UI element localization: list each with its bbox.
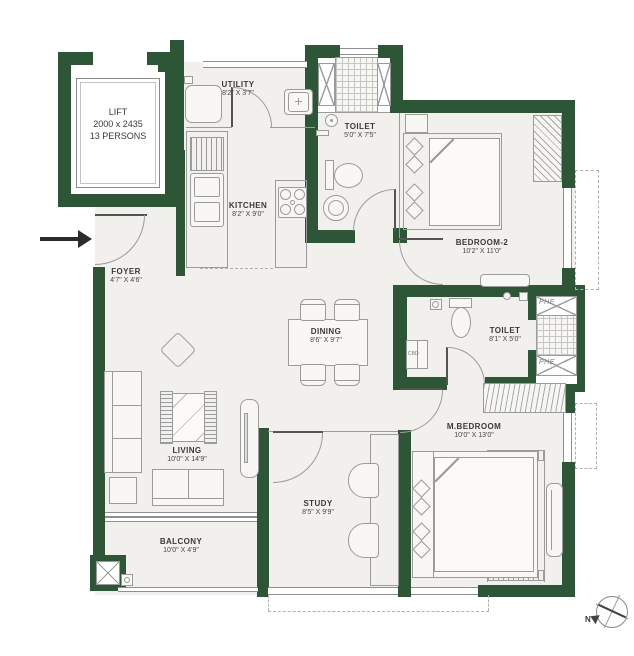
window [203, 61, 307, 68]
room-dims: 5'0" X 7'5" [344, 132, 376, 139]
wardrobe [483, 383, 566, 413]
room-name: TOILET [489, 326, 521, 335]
room-name: TOILET [344, 122, 376, 131]
dresser [546, 483, 563, 557]
projection-dashed [268, 611, 489, 612]
wall [528, 288, 536, 320]
window [268, 587, 398, 595]
blanket-fold [430, 139, 454, 163]
dining-chair [300, 299, 326, 321]
wall [478, 585, 575, 597]
door-arc [95, 215, 145, 265]
chair-back-line [301, 380, 325, 381]
loveseat-divider [188, 470, 189, 498]
burner [294, 189, 305, 200]
study-chair [348, 523, 379, 558]
sofa-cushion-line [113, 405, 141, 406]
tv-unit-glass [172, 393, 205, 442]
duct-box [318, 63, 335, 106]
room-name: KITCHEN [229, 201, 267, 210]
room-dims: 4'7" X 4'6" [110, 277, 142, 284]
window [340, 48, 378, 55]
room-label-foyer: FOYER 4'7" X 4'6" [110, 267, 142, 284]
shower-head-dot [330, 119, 333, 122]
wall [398, 430, 411, 597]
window [563, 188, 572, 268]
study-desk [370, 434, 399, 586]
wc-bowl [451, 307, 471, 338]
tap-icon [316, 130, 329, 136]
floor-drain-hole [124, 577, 130, 583]
nightstand [405, 114, 428, 133]
wc-bowl [334, 163, 363, 188]
lift-capacity: 13 PERSONS [90, 130, 147, 142]
kitchen-sink-bowl [194, 177, 220, 197]
wall [305, 230, 355, 243]
room-name: UTILITY [221, 80, 254, 89]
dresser-line [551, 490, 552, 550]
room-dims: 8'5" X 9'9" [302, 509, 334, 516]
projection-dashed [575, 170, 599, 290]
dining-chair [334, 299, 360, 321]
tv-screen [244, 413, 248, 463]
room-name: BEDROOM-2 [456, 238, 509, 247]
dining-chair [334, 364, 360, 386]
wall [577, 288, 585, 392]
burner-knob [290, 200, 295, 205]
wall [562, 100, 575, 188]
balcony-railing [118, 587, 258, 592]
room-dims: 10'0" X 4'9" [160, 547, 202, 554]
burner [280, 189, 291, 200]
loveseat-back [153, 498, 223, 499]
phe-label: PHE [539, 359, 555, 366]
kitchen-sink-bowl [194, 202, 220, 222]
room-name: FOYER [110, 267, 142, 276]
wall [170, 40, 184, 154]
sofa-back [112, 372, 113, 472]
room-dims: 10'0" X 13'0" [447, 432, 501, 439]
balcony-duct [96, 561, 120, 585]
room-label-kitchen: KITCHEN 8'2" X 9'0" [229, 201, 267, 218]
tv-unit-side [204, 391, 217, 444]
projection-dashed [575, 403, 597, 469]
door-arc [400, 390, 443, 433]
room-name: STUDY [302, 499, 334, 508]
wall [176, 150, 185, 276]
study-chair [348, 463, 379, 498]
phe-label: PHE [539, 299, 555, 306]
room-dims: 8'1" X 5'0" [489, 336, 521, 343]
blanket-fold [435, 458, 459, 482]
room-label-mbedroom: M.BEDROOM 10'0" X 13'0" [447, 422, 501, 439]
shower-area [335, 57, 378, 113]
room-dims: 8'2" X 3'7" [221, 90, 254, 97]
room-name: BALCONY [160, 537, 202, 546]
room-label-toilet1: TOILET 5'0" X 7'5" [344, 122, 376, 139]
room-name: LIVING [167, 446, 207, 455]
door-arc [353, 189, 395, 231]
door-arc [399, 240, 443, 285]
dresser [480, 274, 530, 287]
floor-plan: PHE PHE LIFT 2000 x 2435 13 PERSONS [0, 0, 634, 656]
room-label-living: LIVING 10'0" X 14'9" [167, 446, 207, 463]
room-dims: 8'6" X 9'7" [310, 337, 342, 344]
wall [390, 100, 575, 113]
geyser-icon [519, 292, 528, 301]
projection-dashed [268, 595, 269, 611]
burner [280, 204, 291, 215]
entrance-arrow [40, 237, 78, 241]
burner [294, 204, 305, 215]
room-label-utility: UTILITY 8'2" X 3'7" [221, 80, 254, 97]
tap-icon [298, 98, 299, 105]
drainboard [190, 137, 224, 171]
room-name: DINING [310, 327, 342, 336]
room-dims: 10'2" X 11'0" [456, 248, 509, 255]
sliding-door [105, 517, 257, 522]
washbasin-bowl [328, 200, 344, 216]
wall [58, 52, 71, 207]
room-label-bedroom2: BEDROOM-2 10'2" X 11'0" [456, 238, 509, 255]
tv-panel [240, 399, 259, 478]
window [411, 587, 478, 595]
room-label-dining: DINING 8'6" X 9'7" [310, 327, 342, 344]
chair-back-line [301, 304, 325, 305]
wall [58, 194, 178, 207]
wall [158, 62, 171, 72]
room-label-study: STUDY 8'5" X 9'9" [302, 499, 334, 516]
entrance-arrow-head [78, 230, 92, 248]
washing-machine [185, 85, 222, 123]
chair-back-line [335, 380, 359, 381]
lift-name: LIFT [90, 106, 147, 118]
shower-area [536, 315, 577, 356]
room-boundary [186, 127, 232, 128]
north-label: N [585, 615, 591, 624]
sofa-cushion-line [113, 438, 141, 439]
room-boundary [399, 113, 400, 238]
sofa [104, 371, 142, 473]
kitchen-open-counter [200, 268, 273, 269]
door-arc [273, 433, 323, 483]
room-label-balcony: BALCONY 10'0" X 4'9" [160, 537, 202, 554]
light-icon [503, 292, 511, 300]
window [563, 413, 572, 462]
geyser-icon [184, 76, 193, 84]
chair-back-line [335, 304, 359, 305]
room-dims: 8'2" X 9'0" [229, 211, 267, 218]
washbasin-bowl [432, 301, 439, 308]
projection-dashed [488, 595, 489, 611]
duct-box [377, 63, 391, 106]
room-boundary [270, 127, 315, 128]
room-boundary [323, 431, 398, 432]
room-label-toilet2: TOILET 8'1" X 5'0" [489, 326, 521, 343]
cbd-label: CBD [408, 351, 419, 357]
wc-cistern [325, 160, 334, 190]
room-dims: 10'0" X 14'9" [167, 456, 207, 463]
dining-chair [300, 364, 326, 386]
door-arc [447, 347, 485, 385]
wardrobe [533, 115, 562, 182]
wall [393, 285, 407, 388]
lift-label: LIFT 2000 x 2435 13 PERSONS [90, 106, 147, 142]
ottoman [109, 477, 137, 504]
wall [562, 462, 575, 597]
room-name: M.BEDROOM [447, 422, 501, 431]
lift-size: 2000 x 2435 [90, 118, 147, 130]
